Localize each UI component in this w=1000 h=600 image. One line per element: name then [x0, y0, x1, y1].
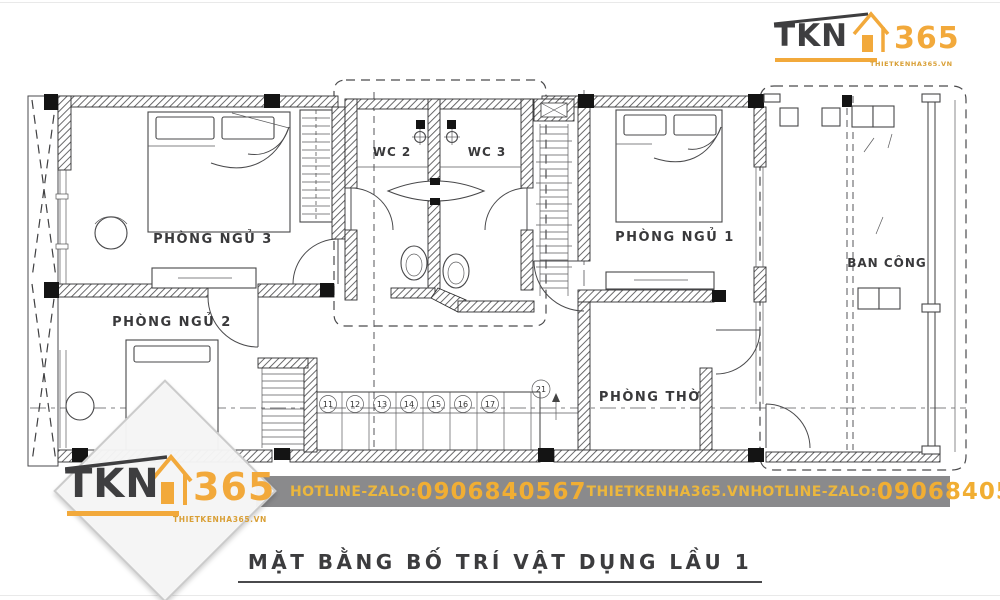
brand-logo: TKN 365 THIETKENHA365.VN [770, 8, 970, 66]
house-icon [854, 14, 888, 52]
svg-text:13: 13 [377, 400, 387, 409]
svg-text:16: 16 [458, 400, 468, 409]
svg-text:14: 14 [404, 400, 414, 409]
tkn-wordmark: TKN [65, 461, 160, 507]
stool-bedroom2 [66, 392, 94, 420]
hotline-label: HOTLINE-ZALO: [290, 484, 417, 500]
svg-text:15: 15 [431, 400, 441, 409]
room-label-worship: PHÒNG THỜ [599, 389, 701, 405]
balcony-railing [764, 94, 940, 454]
stair-arrow-head [552, 393, 560, 402]
brand-website: THIETKENHA365.VN [173, 515, 267, 524]
brand-website: THIETKENHA365.VN [870, 60, 953, 68]
room-label-bedroom1: PHÒNG NGỦ 1 [615, 228, 735, 245]
svg-text:11: 11 [323, 400, 333, 409]
tkn-wordmark: TKN [774, 18, 848, 54]
watermark-logo: TKN 365 THIETKENHA365.VN [65, 449, 265, 533]
footer-bar: HOTLINE-ZALO: 0906840567 THIETKENHA365.V… [256, 476, 950, 507]
365-wordmark: 365 [894, 21, 960, 56]
bed-bedroom3 [148, 112, 290, 232]
room-label-wc3: WC 3 [468, 145, 507, 159]
room-label-balcony: BAN CÔNG [847, 255, 927, 270]
svg-text:17: 17 [485, 400, 495, 409]
drawing-title: MẶT BẰNG BỐ TRÍ VẬT DỤNG LẦU 1 [238, 550, 762, 583]
toilet-wc3 [443, 254, 469, 288]
svg-text:12: 12 [350, 400, 360, 409]
logo-underline-bar [67, 511, 179, 516]
toilet-wc2 [401, 246, 427, 280]
365-wordmark: 365 [193, 465, 275, 509]
room-label-bedroom3: PHÒNG NGỦ 3 [153, 230, 273, 247]
balcony-planters [780, 106, 900, 309]
svg-text:21: 21 [536, 385, 546, 394]
stool-bedroom3 [95, 217, 127, 249]
stair-upper-flight [536, 124, 572, 296]
bed-bedroom1 [616, 110, 722, 222]
phone-number: 0906840567 [877, 479, 1000, 505]
page: PHÒNG NGỦ 3 PHÒNG NGỦ 2 PHÒNG NGỦ 1 WC 2… [0, 0, 1000, 600]
room-label-bedroom2: PHÒNG NGỦ 2 [112, 313, 232, 330]
glass-symbol-marks [864, 134, 892, 234]
room-label-wc2: WC 2 [373, 145, 412, 159]
phone-number: 0906840567 [417, 479, 587, 505]
dresser-bedroom1 [606, 272, 714, 289]
logo-underline-bar [775, 58, 877, 62]
light-well [28, 96, 58, 466]
hotline-label: HOTLINE-ZALO: [750, 484, 877, 500]
website-label: THIETKENHA365.VN [587, 484, 751, 500]
wardrobe-bedroom3 [300, 110, 332, 222]
